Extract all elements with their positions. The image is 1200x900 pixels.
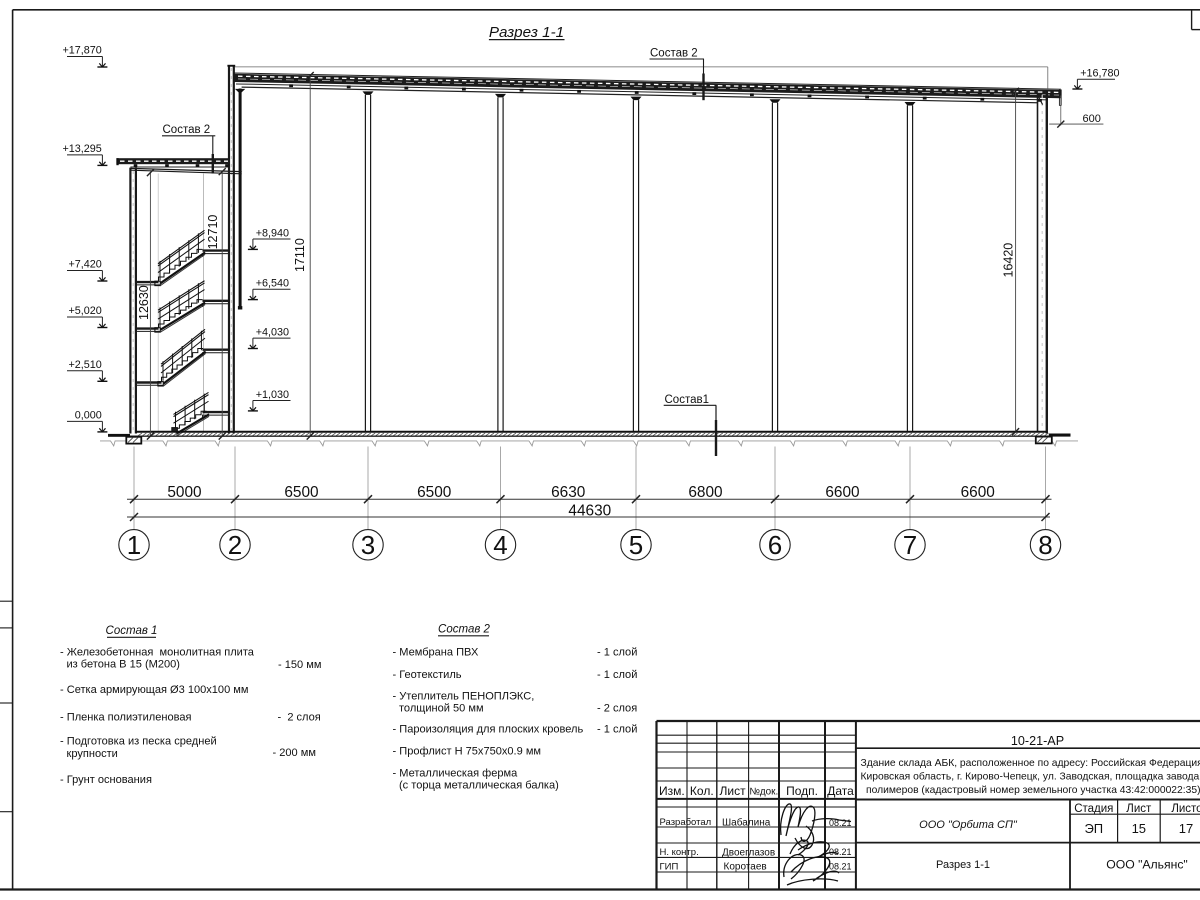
svg-text:Н. контр.: Н. контр. <box>660 847 699 858</box>
svg-text:Состав 1: Состав 1 <box>106 625 158 637</box>
svg-text:Состав 2: Состав 2 <box>438 624 490 636</box>
svg-text:08.21: 08.21 <box>829 818 852 828</box>
svg-text:+7,420: +7,420 <box>68 259 101 271</box>
svg-text:- Сетка армирующая Ø3 100х100: - Сетка армирующая Ø3 100х100 мм <box>60 684 248 696</box>
svg-text:толщиной 50 мм: толщиной 50 мм <box>399 703 484 715</box>
svg-text:12630: 12630 <box>137 285 151 320</box>
svg-text:Двоеглазов: Двоеглазов <box>722 848 775 859</box>
svg-text:5000: 5000 <box>167 484 201 501</box>
svg-text:15: 15 <box>1132 821 1146 836</box>
svg-text:6: 6 <box>768 530 782 560</box>
svg-text:5: 5 <box>629 530 643 560</box>
svg-text:Лист: Лист <box>720 784 747 798</box>
svg-text:17110: 17110 <box>293 238 307 272</box>
svg-text:- Грунт основания: - Грунт основания <box>60 774 152 786</box>
svg-text:12710: 12710 <box>206 215 220 250</box>
svg-text:44630: 44630 <box>568 503 611 520</box>
svg-text:- 1 слой: - 1 слой <box>597 647 637 659</box>
svg-text:+1,030: +1,030 <box>256 389 289 401</box>
svg-text:Кол.: Кол. <box>690 784 714 798</box>
svg-text:Листов: Листов <box>1171 803 1200 815</box>
svg-text:- Профлист Н 75х750х0.9 мм: - Профлист Н 75х750х0.9 мм <box>393 746 542 758</box>
svg-text:6600: 6600 <box>825 484 859 501</box>
svg-text:Разработал: Разработал <box>660 817 712 828</box>
svg-text:Дата: Дата <box>827 784 854 798</box>
svg-text:Шабалина: Шабалина <box>722 817 771 829</box>
svg-text:- Мембрана ПВХ: - Мембрана ПВХ <box>393 647 479 659</box>
svg-text:- 200 мм: - 200 мм <box>273 747 316 759</box>
svg-text:6500: 6500 <box>417 484 451 501</box>
svg-text:полимеров (кадастровый номер з: полимеров (кадастровый номер земельного … <box>866 785 1200 796</box>
svg-text:- 1 слой: - 1 слой <box>597 724 637 736</box>
svg-text:- Пленка полиэтиленовая: - Пленка полиэтиленовая <box>60 712 192 724</box>
svg-text:+4,030: +4,030 <box>256 327 289 339</box>
svg-text:из бетона В 15 (М200): из бетона В 15 (М200) <box>67 659 180 671</box>
svg-text:8: 8 <box>1038 530 1052 560</box>
svg-text:+2,510: +2,510 <box>68 359 101 371</box>
svg-text:+13,295: +13,295 <box>62 143 101 155</box>
svg-text:600: 600 <box>1083 113 1101 125</box>
svg-text:ООО "Альянс": ООО "Альянс" <box>1106 858 1188 872</box>
svg-text:10-21-АР: 10-21-АР <box>1011 734 1064 748</box>
svg-text:- Железобетонная монолитная п: - Железобетонная монолитная плита <box>60 647 255 659</box>
svg-text:Состав1: Состав1 <box>665 394 710 406</box>
svg-text:3: 3 <box>361 530 375 560</box>
svg-text:4: 4 <box>493 530 507 560</box>
svg-text:- 150 мм: - 150 мм <box>278 659 321 671</box>
svg-text:Коротаев: Коротаев <box>724 862 767 873</box>
svg-text:+5,020: +5,020 <box>68 305 101 317</box>
svg-text:Лист: Лист <box>1126 803 1152 815</box>
svg-text:+6,540: +6,540 <box>256 278 289 290</box>
svg-text:0,000: 0,000 <box>75 410 102 422</box>
svg-text:1: 1 <box>127 530 141 560</box>
svg-text:6800: 6800 <box>688 484 722 501</box>
svg-text:08.21: 08.21 <box>829 862 852 872</box>
svg-text:6630: 6630 <box>551 484 585 501</box>
svg-text:- 2 слоя: - 2 слоя <box>597 703 637 715</box>
svg-text:- Утеплитель ПЕНОПЛЭКС,: - Утеплитель ПЕНОПЛЭКС, <box>393 691 535 703</box>
svg-text:17: 17 <box>1179 821 1193 836</box>
svg-text:Здание склада АБК, расположенн: Здание склада АБК, расположенное по адре… <box>861 758 1200 769</box>
svg-text:Кировская область, г. Кирово-Ч: Кировская область, г. Кирово-Чепецк, ул.… <box>861 771 1200 783</box>
svg-text:+17,870: +17,870 <box>62 45 101 57</box>
svg-text:2: 2 <box>228 530 242 560</box>
svg-text:Стадия: Стадия <box>1074 803 1113 815</box>
svg-text:Состав 2: Состав 2 <box>650 48 698 60</box>
svg-text:(с торца металлическая балка): (с торца металлическая балка) <box>399 780 559 792</box>
svg-text:+8,940: +8,940 <box>256 227 289 239</box>
svg-text:7: 7 <box>903 530 917 560</box>
svg-text:- Подготовка из песка средней: - Подготовка из песка средней <box>60 736 217 748</box>
svg-text:№док.: №док. <box>749 787 778 798</box>
svg-text:крупности: крупности <box>67 748 118 760</box>
svg-text:ЭП: ЭП <box>1084 821 1103 836</box>
svg-text:6600: 6600 <box>961 484 995 501</box>
svg-text:- Пароизоляция для плоских кро: - Пароизоляция для плоских кровель <box>393 724 584 736</box>
svg-text:+16,780: +16,780 <box>1080 68 1119 80</box>
svg-text:Подп.: Подп. <box>786 784 818 798</box>
svg-text:- Металлическая ферма: - Металлическая ферма <box>393 768 519 780</box>
svg-text:ГИП: ГИП <box>660 862 679 873</box>
svg-text:Разрез 1-1: Разрез 1-1 <box>936 859 990 871</box>
svg-text:- Геотекстиль: - Геотекстиль <box>393 669 462 681</box>
svg-text:6500: 6500 <box>284 484 318 501</box>
svg-text:- 1 слой: - 1 слой <box>597 669 637 681</box>
svg-text:Разрез 1-1: Разрез 1-1 <box>489 24 564 41</box>
svg-text:- 2 слоя: - 2 слоя <box>278 712 321 724</box>
svg-text:Состав 2: Состав 2 <box>163 124 211 136</box>
svg-text:ООО "Орбита СП": ООО "Орбита СП" <box>919 819 1018 831</box>
svg-text:16420: 16420 <box>1002 243 1016 278</box>
svg-text:Изм.: Изм. <box>659 784 685 798</box>
